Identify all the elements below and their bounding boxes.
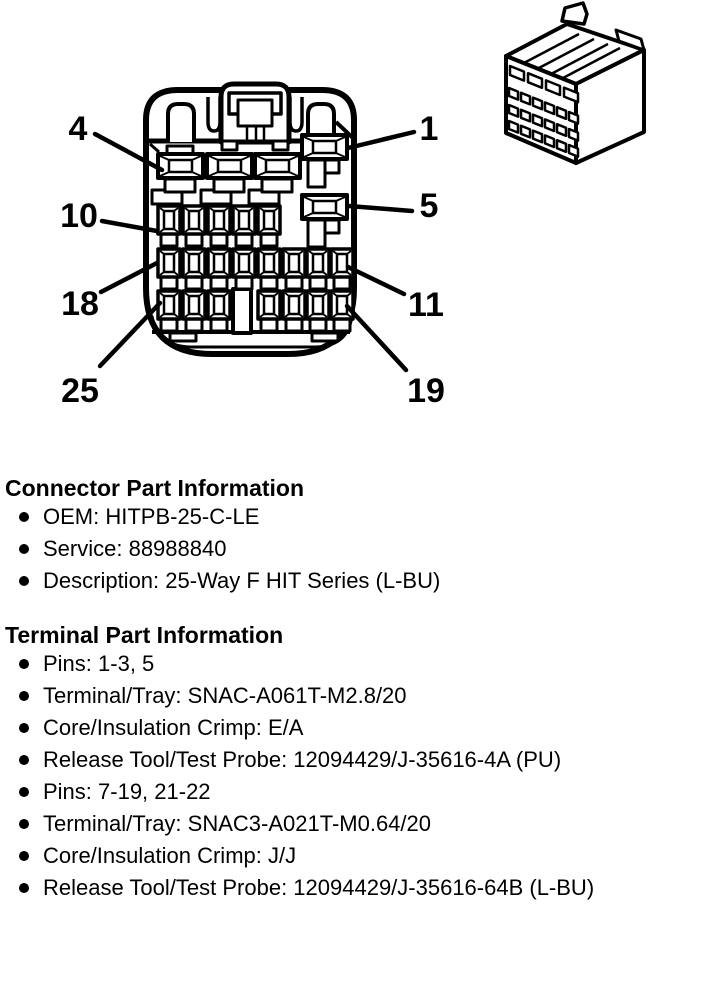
callout-label: 11 <box>408 286 444 324</box>
bullet-icon <box>19 576 29 586</box>
callout-label: 5 <box>420 187 439 225</box>
list-item: Terminal/Tray: SNAC-A061T-M2.8/20 <box>0 680 704 712</box>
cavity-small <box>158 206 180 246</box>
cavity-bracket <box>214 179 244 192</box>
iso-cavity <box>557 124 566 136</box>
cavity-tab <box>261 234 277 246</box>
part-information-content: Connector Part Information OEM: HITPB-25… <box>0 460 704 904</box>
cavity-tab <box>161 319 177 331</box>
cavity-tab <box>261 277 277 289</box>
cavity-inner <box>264 211 274 229</box>
cavity-inner <box>313 254 323 272</box>
iso-cavity <box>509 105 518 117</box>
bullet-icon <box>19 723 29 733</box>
cavity-inner <box>189 211 199 229</box>
cavity-tab <box>236 234 252 246</box>
list-item: Core/Insulation Crimp: J/J <box>0 840 704 872</box>
list-item: Pins: 7-19, 21-22 <box>0 776 704 808</box>
bullet-text: Release Tool/Test Probe: 12094429/J-3561… <box>43 747 561 773</box>
callout-18: 18 <box>61 263 157 323</box>
bullet-text: Pins: 7-19, 21-22 <box>43 779 211 805</box>
cavity-tab <box>310 277 326 289</box>
cavity-inner <box>189 254 199 272</box>
cavity-inner <box>337 254 347 272</box>
callout-leader-line <box>349 206 412 211</box>
cavity-small <box>158 291 180 331</box>
iso-cavity <box>521 93 530 105</box>
bullet-text: Core/Insulation Crimp: J/J <box>43 843 296 869</box>
callout-10: 10 <box>60 197 157 235</box>
cavity-small <box>258 291 280 331</box>
iso-cavity <box>509 121 518 133</box>
cavity-inner <box>164 211 174 229</box>
cavity-small <box>158 249 180 289</box>
callout-leader-line <box>100 303 160 366</box>
terminal-info-list-group1: Pins: 1-3, 5 Terminal/Tray: SNAC-A061T-M… <box>0 648 704 776</box>
cavity-tab <box>186 277 202 289</box>
center-post <box>233 289 251 333</box>
cavity-inner <box>169 160 192 172</box>
guide-tab-left <box>168 104 194 142</box>
list-item: Core/Insulation Crimp: E/A <box>0 712 704 744</box>
cavity-small <box>183 291 205 331</box>
latch-foot-right <box>273 141 288 150</box>
connector-info-list: OEM: HITPB-25-C-LE Service: 88988840 Des… <box>0 501 704 597</box>
cavity-small <box>258 249 280 289</box>
shelf-slot <box>312 333 338 341</box>
cavity-tab <box>236 277 252 289</box>
connector-isometric-view <box>506 3 644 163</box>
callout-leader-line <box>347 306 406 370</box>
callout-1: 1 <box>348 110 438 148</box>
iso-cavity <box>569 112 578 124</box>
iso-cavity <box>533 115 542 127</box>
bullet-icon <box>19 512 29 522</box>
cavity-small <box>307 291 329 331</box>
iso-cavity <box>569 129 578 141</box>
callout-label: 25 <box>61 372 99 410</box>
cavity-tab <box>286 277 302 289</box>
list-item: Service: 88988840 <box>0 533 704 565</box>
cavity-tab <box>286 319 302 331</box>
cavity-bracket <box>308 160 325 187</box>
document-page: 4110518112519 Connector Part Information… <box>0 0 704 984</box>
latch-foot-left <box>222 141 237 150</box>
latch-inner2 <box>238 100 272 126</box>
cavity-inner <box>164 296 174 314</box>
latch-hook-left <box>208 97 220 131</box>
callout-leader-line <box>348 132 414 148</box>
callout-label: 1 <box>420 110 439 148</box>
cavity-bracket <box>262 179 292 192</box>
cavity-bracket <box>308 220 325 247</box>
list-item: Description: 25-Way F HIT Series (L-BU) <box>0 565 704 597</box>
cavity-tab <box>161 277 177 289</box>
cavity-inner <box>264 254 274 272</box>
cavity-tab <box>161 234 177 246</box>
cavity-small <box>208 249 230 289</box>
callout-label: 10 <box>60 197 98 235</box>
cavity-tab <box>186 319 202 331</box>
cavity-inner <box>239 211 249 229</box>
cavity-tab <box>211 277 227 289</box>
callout-5: 5 <box>349 187 438 225</box>
bullet-text: Terminal/Tray: SNAC3-A021T-M0.64/20 <box>43 811 431 837</box>
bullet-text: Core/Insulation Crimp: E/A <box>43 715 303 741</box>
iso-cavity <box>533 131 542 143</box>
bullet-text: Terminal/Tray: SNAC-A061T-M2.8/20 <box>43 683 407 709</box>
callout-11: 11 <box>348 267 444 324</box>
bullet-icon <box>19 659 29 669</box>
latch-hook-right <box>290 97 302 131</box>
cavity-inner <box>214 296 224 314</box>
bullet-icon <box>19 691 29 701</box>
cavity-small <box>307 249 329 289</box>
cavity-inner <box>239 254 249 272</box>
list-item: Terminal/Tray: SNAC3-A021T-M0.64/20 <box>0 808 704 840</box>
connector-figure: 4110518112519 <box>0 0 704 460</box>
list-item: Release Tool/Test Probe: 12094429/J-3561… <box>0 744 704 776</box>
cavity-small <box>183 206 205 246</box>
iso-cavity <box>557 140 566 152</box>
cavity-inner <box>189 296 199 314</box>
list-item: Pins: 1-3, 5 <box>0 648 704 680</box>
callout-label: 4 <box>69 110 88 148</box>
cavity-tab <box>211 234 227 246</box>
bullet-icon <box>19 851 29 861</box>
bullet-icon <box>19 787 29 797</box>
cavity-inner <box>264 296 274 314</box>
bullet-icon <box>19 883 29 893</box>
cavity-small <box>208 206 230 246</box>
cavity-inner <box>313 296 323 314</box>
cavity-tab <box>334 277 350 289</box>
cavity-inner <box>313 141 336 153</box>
bullet-text: Pins: 1-3, 5 <box>43 651 154 677</box>
cavity-tab <box>310 319 326 331</box>
list-item: Release Tool/Test Probe: 12094429/J-3561… <box>0 872 704 904</box>
iso-cavity <box>533 98 542 110</box>
list-item: OEM: HITPB-25-C-LE <box>0 501 704 533</box>
iso-cavity <box>521 126 530 138</box>
cavity-small <box>233 206 255 246</box>
cavity-tab <box>211 319 227 331</box>
bullet-icon <box>19 819 29 829</box>
callout-label: 19 <box>407 372 445 410</box>
bullet-text: OEM: HITPB-25-C-LE <box>43 504 259 530</box>
cavity-small <box>258 206 280 246</box>
shelf-slot <box>170 333 196 341</box>
cavity-inner <box>164 254 174 272</box>
iso-cavity <box>569 145 578 157</box>
bullet-text: Release Tool/Test Probe: 12094429/J-3561… <box>43 875 594 901</box>
cavity-small <box>208 291 230 331</box>
cavity-bracket <box>165 179 195 192</box>
cavity-inner <box>289 296 299 314</box>
cavity-small <box>283 291 305 331</box>
cavity-inner <box>218 160 241 172</box>
cavity-small <box>233 249 255 289</box>
callout-label: 18 <box>61 285 99 323</box>
iso-cavity <box>545 119 554 131</box>
bullet-icon <box>19 755 29 765</box>
bullet-text: Description: 25-Way F HIT Series (L-BU) <box>43 568 440 594</box>
bullet-text: Service: 88988840 <box>43 536 226 562</box>
cavity-inner <box>266 160 289 172</box>
guide-tab-right <box>308 104 334 134</box>
cavity-inner <box>214 254 224 272</box>
iso-cavity <box>557 107 566 119</box>
terminal-info-list-group2: Pins: 7-19, 21-22 Terminal/Tray: SNAC3-A… <box>0 776 704 904</box>
iso-cavity <box>509 88 518 100</box>
cavity-inner <box>313 201 336 213</box>
section-heading-terminal: Terminal Part Information <box>0 623 704 648</box>
cavity-tab <box>334 319 350 331</box>
cavity-tab <box>186 234 202 246</box>
section-heading-connector: Connector Part Information <box>0 476 704 501</box>
iso-cavity <box>521 110 530 122</box>
cavity-small <box>183 249 205 289</box>
cavity-inner <box>289 254 299 272</box>
cavity-tab <box>261 319 277 331</box>
cavity-small <box>283 249 305 289</box>
cavity-inner <box>214 211 224 229</box>
bullet-icon <box>19 544 29 554</box>
iso-cavity <box>545 102 554 114</box>
iso-top-clip <box>562 3 587 24</box>
iso-cavity <box>545 135 554 147</box>
